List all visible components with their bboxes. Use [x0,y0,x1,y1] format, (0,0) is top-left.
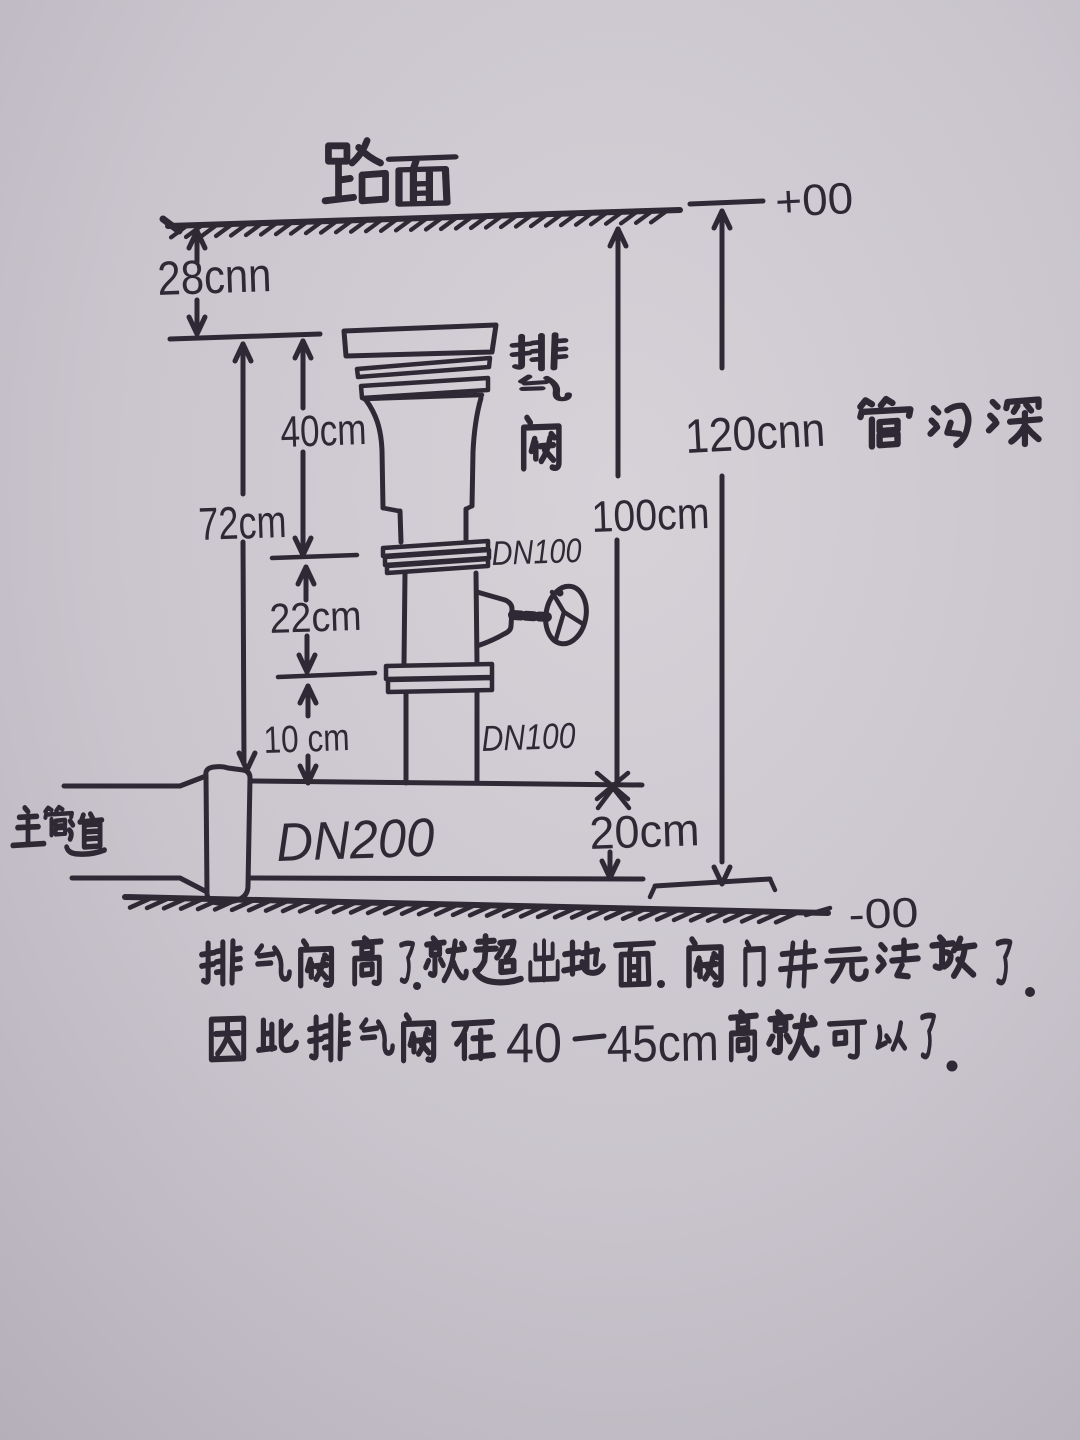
svg-text:+00: +00 [774,174,854,227]
svg-text:DN200: DN200 [275,808,435,873]
svg-text:-00: -00 [848,889,920,938]
svg-text:45cm: 45cm [606,1014,719,1074]
svg-text:72cm: 72cm [198,495,288,550]
svg-text:100cm: 100cm [591,489,711,542]
svg-text:40: 40 [506,1011,562,1074]
svg-text:22cm: 22cm [269,592,363,642]
svg-text:120cnn: 120cnn [684,404,827,464]
svg-text:28cnn: 28cnn [157,249,273,306]
svg-text:DN100: DN100 [491,532,582,573]
svg-text:DN100: DN100 [481,715,576,759]
svg-text:40cm: 40cm [280,405,368,457]
svg-text:10 cm: 10 cm [263,717,350,762]
svg-text:20cm: 20cm [589,803,701,859]
